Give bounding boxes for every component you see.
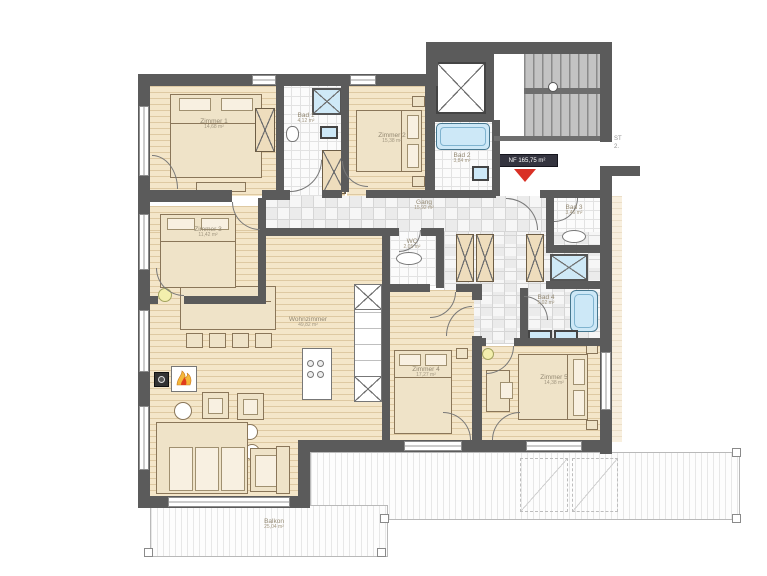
cooktop-plate	[307, 360, 314, 367]
wardrobe	[456, 234, 474, 282]
stairwell-note: ST 2.	[614, 136, 636, 152]
balcony-post	[377, 548, 386, 557]
wall	[426, 42, 438, 86]
balcony-post	[732, 448, 741, 457]
tub-inner	[440, 127, 486, 146]
window	[139, 214, 149, 270]
stair-railing	[524, 88, 600, 94]
armchair	[202, 392, 229, 419]
sofa-cushion	[221, 447, 245, 491]
balcony-structure-mark	[572, 458, 618, 512]
sofa	[156, 422, 248, 494]
floor-plan: NF 165,75 m²	[0, 0, 767, 576]
wall	[382, 232, 390, 442]
balcony-post	[380, 514, 389, 523]
bathtub	[570, 290, 598, 332]
stove	[154, 372, 169, 387]
wall	[546, 190, 554, 247]
blanket-line	[161, 241, 235, 242]
wall	[600, 176, 612, 454]
nightstand	[586, 420, 598, 430]
washbasin	[396, 252, 422, 265]
cooktop-plate	[317, 371, 324, 378]
cooktop-plate	[307, 371, 314, 378]
stair-landing-rail	[494, 136, 600, 141]
floor-neighbor	[612, 196, 622, 442]
wall	[390, 284, 430, 292]
armchair	[237, 393, 264, 420]
nightstand	[456, 348, 468, 359]
wall	[436, 232, 444, 288]
blanket-line	[171, 123, 261, 124]
washbasin	[562, 230, 586, 243]
wall	[426, 42, 612, 54]
stair-newel	[548, 82, 558, 92]
wall	[600, 166, 640, 176]
wall	[600, 42, 612, 142]
pillow	[179, 98, 211, 111]
wall	[276, 86, 284, 192]
window	[168, 497, 290, 507]
dining-chair	[255, 333, 272, 348]
window	[601, 352, 611, 410]
wall	[262, 190, 290, 200]
sofa-cushion	[169, 447, 193, 491]
pillow	[201, 218, 229, 230]
pillow	[425, 354, 447, 366]
pillow	[573, 359, 585, 385]
balcony-left	[150, 505, 388, 557]
cabinet-shelves	[355, 312, 381, 374]
nightstand	[412, 176, 425, 187]
wall	[150, 190, 232, 202]
stove-plate	[158, 376, 165, 383]
bed	[518, 354, 588, 420]
dining-chair	[186, 333, 203, 348]
nightstand	[412, 96, 425, 107]
window	[350, 75, 376, 85]
balcony-structure-mark	[520, 458, 568, 512]
sofa-cushion	[195, 447, 219, 491]
wall	[425, 86, 435, 196]
seat-cushion	[243, 399, 258, 415]
shower	[550, 254, 588, 281]
toilet	[286, 126, 299, 142]
entrance-marker-icon	[514, 169, 536, 182]
seat-cushion	[208, 398, 223, 414]
wall	[514, 338, 602, 346]
wall	[265, 228, 377, 236]
wall	[322, 190, 342, 198]
stairwell-note-line2: 2.	[614, 144, 636, 152]
pillow	[407, 115, 419, 139]
floor-landing	[494, 140, 600, 196]
wall	[138, 74, 438, 86]
balcony-post	[144, 548, 153, 557]
wardrobe	[255, 108, 275, 152]
wall	[366, 190, 496, 198]
desk-chair	[500, 382, 513, 399]
wall	[150, 296, 158, 304]
side-table	[174, 402, 192, 420]
entrance-area-label: NF 165,75 m²	[496, 154, 558, 167]
dining-chair	[232, 333, 249, 348]
bathtub	[436, 123, 490, 150]
fireplace	[171, 366, 197, 392]
pillow	[573, 390, 585, 416]
blanket-line	[401, 111, 402, 171]
cabinet-x	[354, 284, 382, 310]
washbasin	[472, 166, 489, 181]
washbasin	[320, 126, 338, 139]
window	[252, 75, 276, 85]
cooktop-plate	[317, 360, 324, 367]
pillow	[399, 354, 421, 366]
pillow	[167, 218, 195, 230]
window	[139, 106, 149, 176]
window	[139, 310, 149, 372]
pillow	[407, 144, 419, 168]
bed	[170, 94, 262, 178]
tv-board	[276, 446, 290, 494]
wall	[472, 336, 482, 444]
wardrobe	[526, 234, 544, 282]
window	[139, 406, 149, 470]
pillow	[221, 98, 253, 111]
cabinet-x	[354, 376, 382, 402]
wall	[472, 284, 482, 300]
blanket-line	[395, 377, 451, 378]
wall	[482, 338, 486, 346]
tub-inner	[574, 294, 594, 328]
dining-chair	[209, 333, 226, 348]
balcony-post	[732, 514, 741, 523]
staircase	[524, 52, 600, 136]
blanket-line	[567, 355, 568, 419]
wall	[184, 296, 266, 304]
flame-icon	[172, 367, 196, 391]
shower	[312, 88, 342, 115]
stairwell-note-line1: ST	[614, 136, 636, 144]
wall	[492, 120, 500, 196]
wall	[546, 281, 602, 289]
wall	[546, 245, 602, 253]
entrance-area-text: NF 165,75 m²	[509, 158, 546, 164]
balcony-door	[404, 441, 462, 451]
elevator	[436, 62, 486, 114]
wardrobe	[476, 234, 494, 282]
window	[526, 441, 582, 451]
